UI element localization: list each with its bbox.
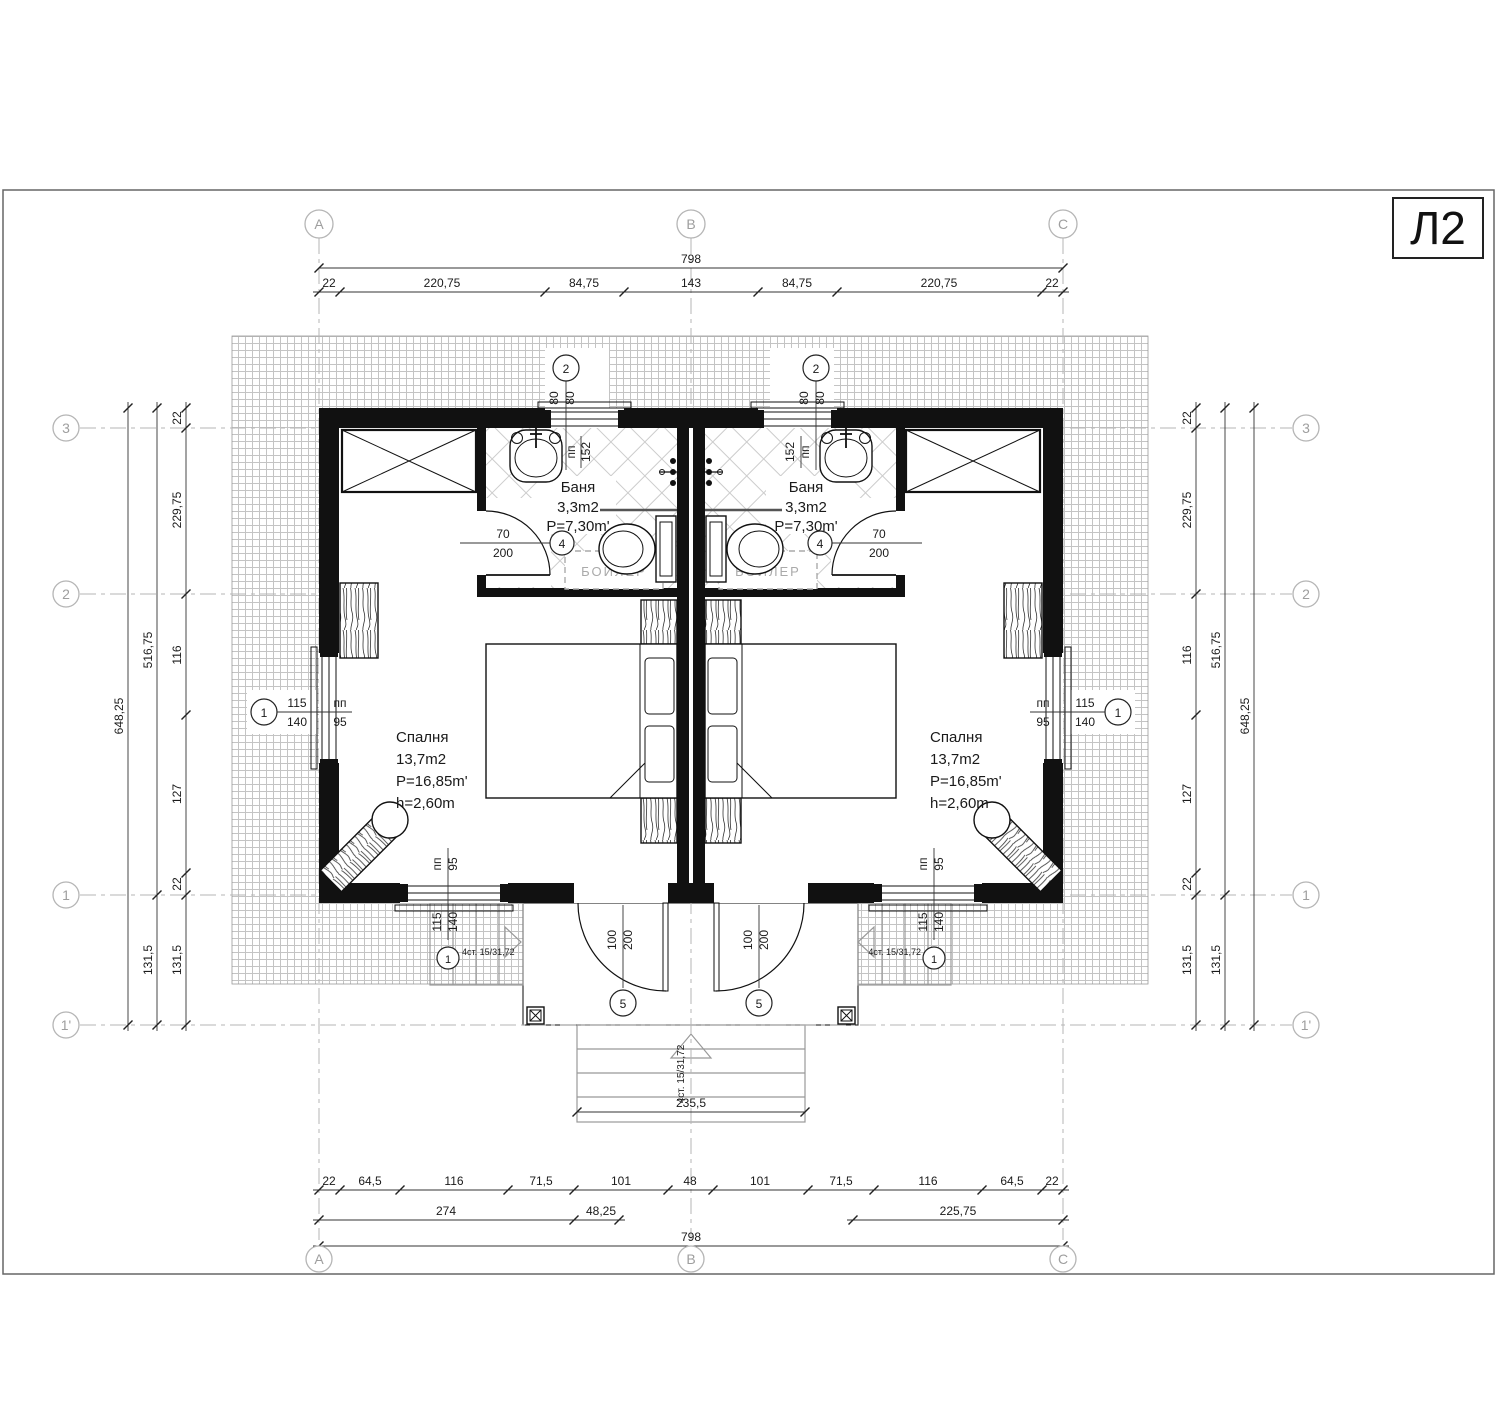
- wardrobe-left: [342, 430, 476, 492]
- tag-lintel: пп: [430, 858, 444, 871]
- tag-no: 2: [813, 362, 820, 376]
- room-name: Баня: [561, 479, 596, 496]
- tag-size: 200: [757, 930, 771, 950]
- bed-right: [705, 644, 896, 798]
- tag-size: 140: [287, 715, 307, 729]
- room-area: 13,7m2: [396, 751, 446, 768]
- dim-left: 648,25 516,75 131,5 22 229,75 116 127 22…: [112, 402, 191, 1031]
- stair-note: 4ст. 15/31,72: [868, 947, 921, 957]
- tag-lintel-val: 152: [783, 442, 797, 462]
- tag-no: 2: [563, 362, 570, 376]
- tag-size: 115: [287, 696, 306, 710]
- party-wall-left: [677, 428, 689, 883]
- tag-size: 80: [547, 391, 561, 405]
- tag-size: 80: [797, 391, 811, 405]
- room-area: 3,3m2: [785, 499, 827, 516]
- dim: 22: [1180, 411, 1194, 425]
- tag-lintel: пп: [916, 858, 930, 871]
- wardrobe-right: [906, 430, 1040, 492]
- dim: 22: [322, 276, 336, 290]
- tag-size: 100: [605, 930, 619, 950]
- tag-size: 70: [872, 527, 886, 541]
- tag-size: 140: [446, 912, 460, 932]
- dim: 22: [1045, 276, 1059, 290]
- sheet-code: Л2: [1410, 202, 1466, 254]
- dim: 516,75: [141, 631, 155, 668]
- sink-left: [510, 428, 562, 482]
- dim: 220,75: [921, 276, 958, 290]
- dim: 229,75: [1180, 491, 1194, 528]
- dim: 143: [681, 276, 701, 290]
- axis-label: 1: [62, 887, 70, 903]
- tag-no: 4: [559, 537, 566, 551]
- tag-size: 100: [741, 930, 755, 950]
- axis-label: C: [1058, 1251, 1068, 1267]
- bed-left: [486, 644, 677, 798]
- dim: 71,5: [829, 1174, 853, 1188]
- dim: 64,5: [1000, 1174, 1024, 1188]
- axis-label: B: [686, 1251, 695, 1267]
- axis-label: 3: [1302, 420, 1310, 436]
- room-perimeter: P=16,85m': [396, 773, 468, 790]
- dim: 229,75: [170, 491, 184, 528]
- tag-lintel-val: 95: [932, 857, 946, 871]
- title-block: Л2: [1393, 198, 1483, 258]
- stair-note: 4ст. 15/31,72: [676, 1044, 687, 1103]
- party-wall-right: [693, 428, 705, 883]
- dim: 116: [170, 645, 184, 664]
- dim-total: 798: [681, 252, 701, 266]
- dim: 220,75: [424, 276, 461, 290]
- dim: 131,5: [1209, 945, 1223, 975]
- dim: 84,75: [569, 276, 599, 290]
- dim: 101: [750, 1174, 770, 1188]
- tag-size: 80: [563, 391, 577, 405]
- room-name: Спалня: [396, 729, 448, 746]
- axis-label: 3: [62, 420, 70, 436]
- axis-label: 2: [1302, 586, 1310, 602]
- axis-label: 2: [62, 586, 70, 602]
- dim: 131,5: [141, 945, 155, 975]
- tag-size: 200: [869, 546, 889, 560]
- dim: 127: [1180, 784, 1194, 804]
- dim: 131,5: [1180, 945, 1194, 975]
- floor-plan-drawing: Л2 Баня 3,3: [0, 0, 1500, 1417]
- dim: 116: [1180, 645, 1194, 664]
- tag-size: 115: [916, 912, 930, 931]
- dim-right: 648,25 516,75 131,5 22 229,75 116 127 22…: [1180, 402, 1259, 1031]
- dim: 648,25: [112, 697, 126, 734]
- stair-note: 4ст. 15/31,72: [462, 947, 515, 957]
- tag-size: 115: [1075, 696, 1094, 710]
- tag-no: 4: [817, 537, 824, 551]
- tag-lintel: пп: [1037, 696, 1050, 710]
- room-area: 13,7m2: [930, 751, 980, 768]
- dim: 22: [1180, 877, 1194, 891]
- tag-lintel: пп: [334, 696, 347, 710]
- tag-no: 1: [445, 954, 451, 966]
- tag-lintel: пп: [564, 446, 578, 459]
- floor-plan-sheet: Л2 Баня 3,3: [0, 0, 1500, 1417]
- tag-lintel: пп: [798, 446, 812, 459]
- dim: 48,25: [586, 1204, 616, 1218]
- dim: 22: [1045, 1174, 1059, 1188]
- tag-size: 80: [813, 391, 827, 405]
- tag-no: 5: [620, 997, 627, 1011]
- tag-size: 200: [621, 930, 635, 950]
- tag-no: 5: [756, 997, 763, 1011]
- room-height: h=2,60m: [396, 795, 455, 812]
- dim-total: 798: [681, 1230, 701, 1244]
- dim: 127: [170, 784, 184, 804]
- dim: 116: [918, 1174, 937, 1188]
- dim: 22: [170, 877, 184, 891]
- tag-size: 115: [430, 912, 444, 931]
- room-name: Баня: [789, 479, 824, 496]
- tag-size: 140: [932, 912, 946, 932]
- axis-label: C: [1058, 216, 1068, 232]
- drain-right-icon: [838, 1007, 855, 1024]
- dim: 64,5: [358, 1174, 382, 1188]
- dim: 131,5: [170, 945, 184, 975]
- axis-label: 1': [1301, 1017, 1311, 1033]
- room-area: 3,3m2: [557, 499, 599, 516]
- axis-label: B: [686, 216, 695, 232]
- tag-size: 70: [496, 527, 510, 541]
- dim: 22: [170, 411, 184, 425]
- room-height: h=2,60m: [930, 795, 989, 812]
- tag-no: 1: [931, 954, 937, 966]
- dim: 116: [444, 1174, 463, 1188]
- dim: 648,25: [1238, 697, 1252, 734]
- tag-lintel-val: 152: [579, 442, 593, 462]
- dim: 22: [322, 1174, 336, 1188]
- dim: 516,75: [1209, 631, 1223, 668]
- axis-label: A: [314, 1251, 324, 1267]
- tag-no: 1: [261, 706, 268, 720]
- sink-right: [820, 428, 872, 482]
- axis-label: A: [314, 216, 324, 232]
- drain-left-icon: [527, 1007, 544, 1024]
- dim: 84,75: [782, 276, 812, 290]
- dim: 274: [436, 1204, 456, 1218]
- tag-lintel-val: 95: [1036, 715, 1050, 729]
- axis-label: 1': [61, 1017, 71, 1033]
- tag-lintel-val: 95: [333, 715, 347, 729]
- axis-label: 1: [1302, 887, 1310, 903]
- dim: 235,5: [676, 1096, 706, 1110]
- room-name: Спалня: [930, 729, 982, 746]
- tag-size: 200: [493, 546, 513, 560]
- dim: 71,5: [529, 1174, 553, 1188]
- room-perimeter: P=7,30m': [774, 518, 837, 535]
- dim: 48: [683, 1174, 697, 1188]
- tag-size: 140: [1075, 715, 1095, 729]
- dim: 101: [611, 1174, 631, 1188]
- tag-lintel-val: 95: [446, 857, 460, 871]
- tag-no: 1: [1115, 706, 1122, 720]
- dim: 225,75: [940, 1204, 977, 1218]
- room-perimeter: P=16,85m': [930, 773, 1002, 790]
